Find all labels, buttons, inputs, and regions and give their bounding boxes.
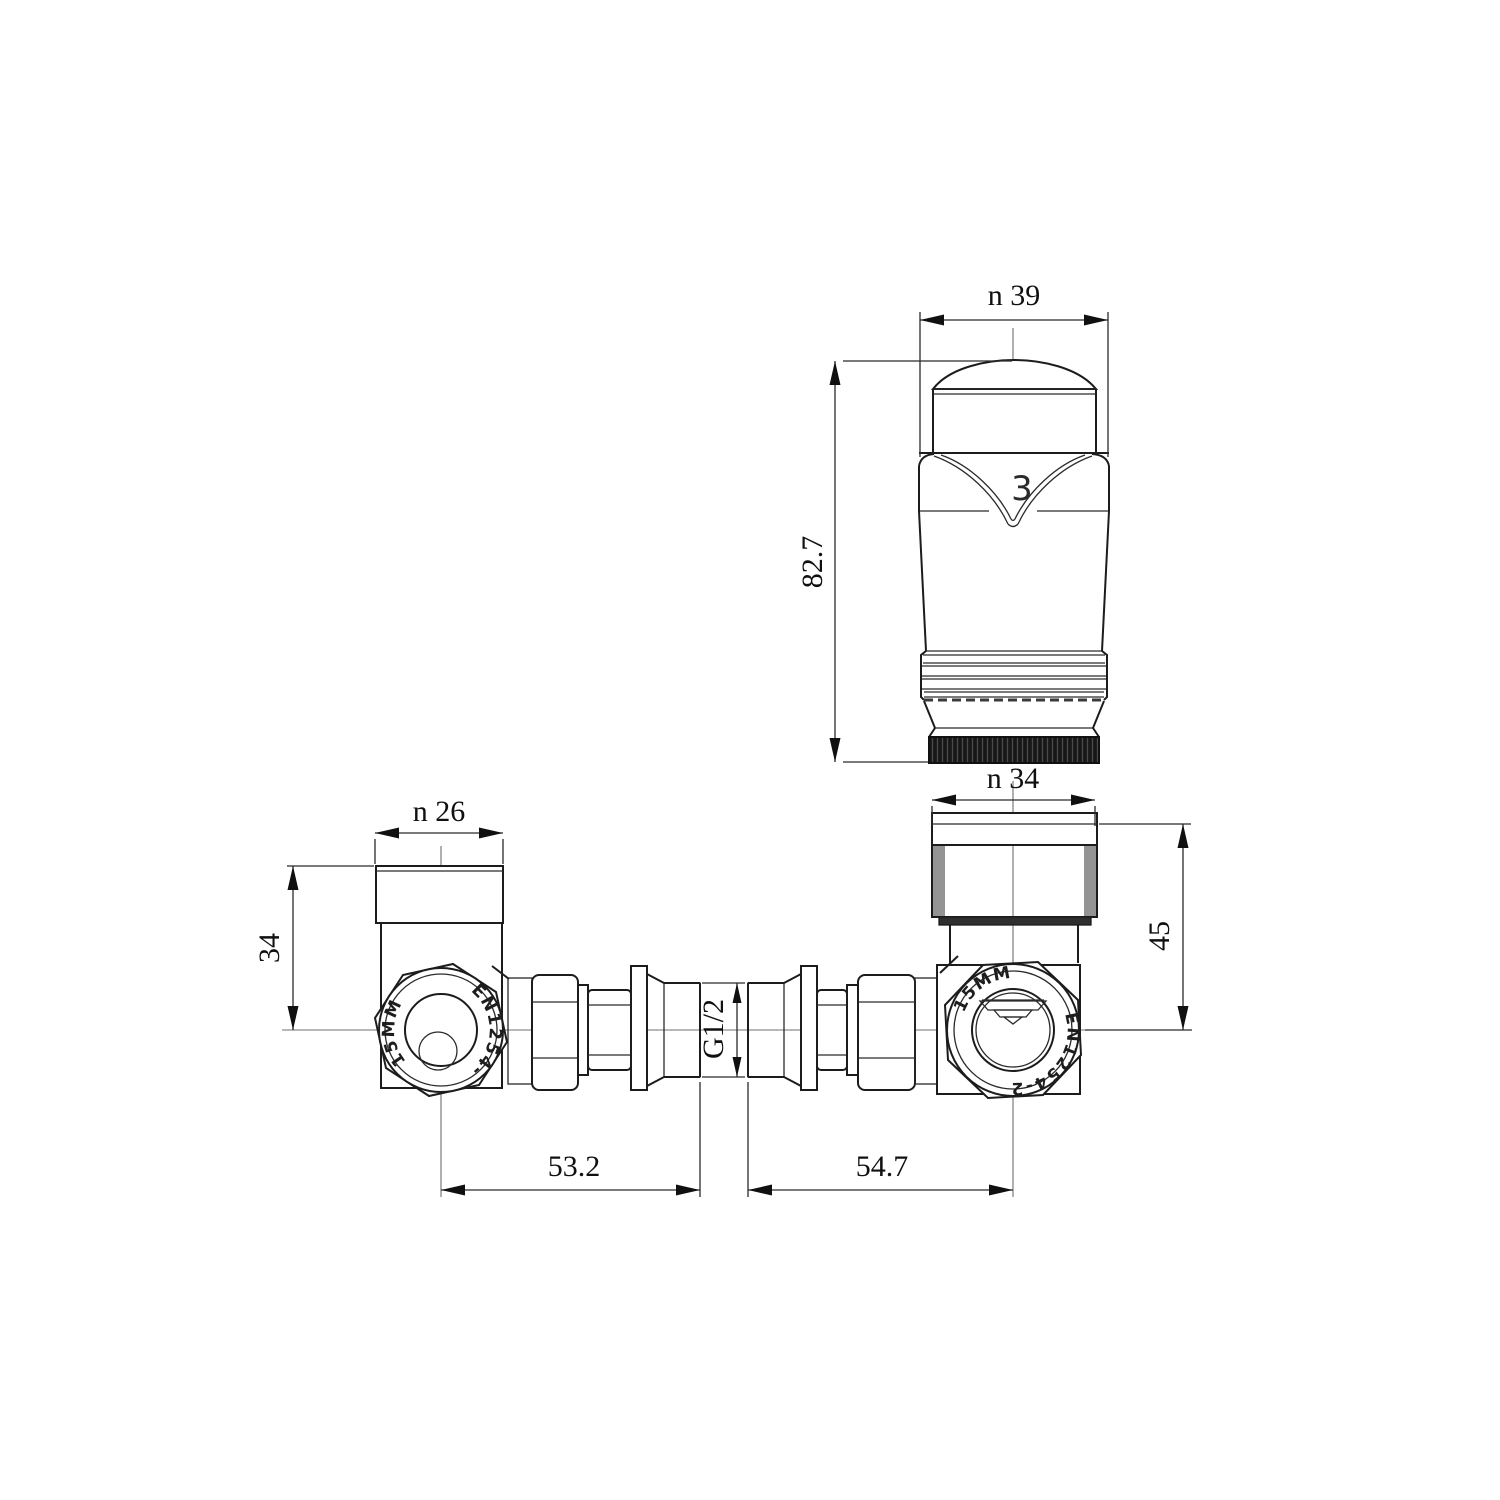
svg-text:n 26: n 26 <box>413 795 466 828</box>
left-compression-nut <box>532 975 578 1090</box>
head-knurled-ring <box>929 737 1099 763</box>
right-step-ring <box>847 985 858 1075</box>
dim-trv-height: 45 <box>1085 824 1192 1030</box>
svg-text:n 34: n 34 <box>987 762 1040 795</box>
thermostatic-head-view: 3 <box>919 360 1109 763</box>
drawing-page: 15MM EN1254-2 <box>0 0 1500 1500</box>
lockshield-valve-view: 15MM EN1254-2 <box>0 0 509 1096</box>
trv-knurl <box>932 845 1097 917</box>
head-setting-number: 3 <box>1011 469 1033 509</box>
svg-text:G1/2: G1/2 <box>697 999 730 1059</box>
trv-cap-top <box>932 813 1097 845</box>
left-collar <box>631 966 647 1090</box>
right-hex-spacer <box>817 990 847 1070</box>
lockshield-bore <box>405 994 477 1066</box>
dim-head-height: 82.7 <box>796 361 1012 762</box>
dim-lockshield-height: 34 <box>253 866 374 1030</box>
dim-lockshield-length: 53.2 <box>441 1082 700 1197</box>
svg-text:34: 34 <box>253 933 286 963</box>
svg-text:82.7: 82.7 <box>796 536 829 589</box>
lockshield-cap <box>376 866 503 923</box>
trv-knurl-rim <box>939 917 1091 925</box>
svg-text:n 39: n 39 <box>988 279 1041 312</box>
svg-text:54.7: 54.7 <box>856 1150 909 1183</box>
dim-trv-length: 54.7 <box>748 1082 1013 1197</box>
right-union-thread <box>915 978 937 1084</box>
dim-lockshield-cap-diameter: n 26 <box>375 795 503 864</box>
head-ribs <box>921 651 1107 700</box>
left-step-ring <box>578 985 588 1075</box>
trv-valve-view: 15MM EN1254-2 <box>932 813 1097 1098</box>
svg-text:53.2: 53.2 <box>548 1150 601 1183</box>
head-dome <box>933 360 1096 389</box>
svg-text:45: 45 <box>1143 921 1176 951</box>
right-compression-nut <box>858 975 915 1090</box>
valve-technical-drawing: 15MM EN1254-2 <box>0 0 1500 1500</box>
right-collar <box>801 966 817 1090</box>
left-hex-spacer <box>588 990 631 1070</box>
left-union-thread <box>508 978 532 1084</box>
